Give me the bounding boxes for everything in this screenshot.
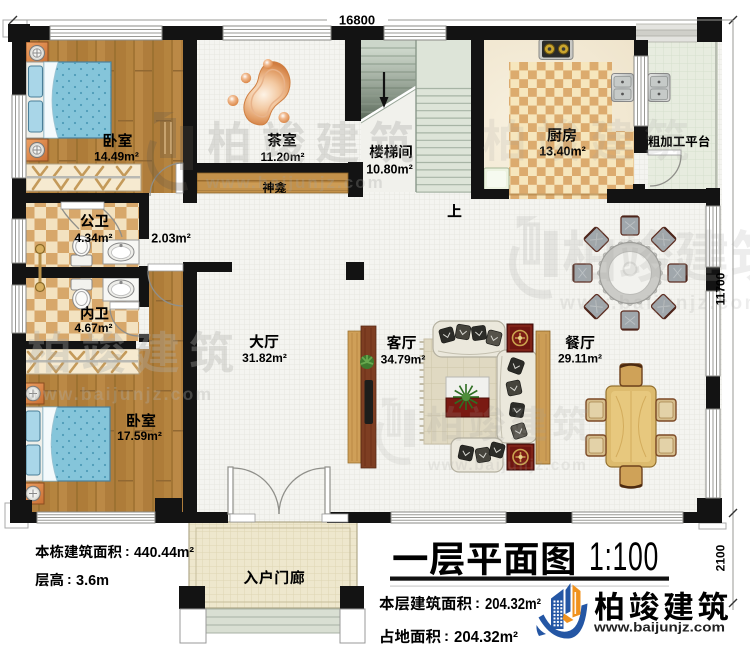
svg-text:3.6m: 3.6m [76,573,109,589]
svg-text:34.79m²: 34.79m² [381,353,426,367]
svg-text::: : [125,543,130,559]
svg-text::: : [475,595,480,612]
svg-text:31.82m²: 31.82m² [242,351,287,365]
svg-text:17.59m²: 17.59m² [117,429,162,443]
svg-text:www.baijunjz.com: www.baijunjz.com [205,173,385,192]
svg-text:2100: 2100 [714,544,728,571]
svg-text:204.32m²: 204.32m² [454,629,518,646]
svg-text:440.44m²: 440.44m² [134,545,194,561]
svg-text:29.11m²: 29.11m² [558,352,602,366]
svg-text:1:100: 1:100 [589,535,659,579]
svg-text:www.baijunjz.com: www.baijunjz.com [427,457,587,474]
svg-text:16800: 16800 [339,13,375,28]
svg-text:www.baijunjz.com: www.baijunjz.com [26,384,213,404]
svg-text:4.34m²: 4.34m² [74,231,112,245]
svg-text:11700: 11700 [714,272,728,305]
svg-text:2.03m²: 2.03m² [151,232,191,246]
svg-text:www.baijunjz.com: www.baijunjz.com [593,620,725,635]
svg-text::: : [444,628,449,645]
svg-text::: : [67,571,72,587]
svg-text:14.49m²: 14.49m² [94,150,139,164]
svg-text:204.32m²: 204.32m² [485,596,541,613]
